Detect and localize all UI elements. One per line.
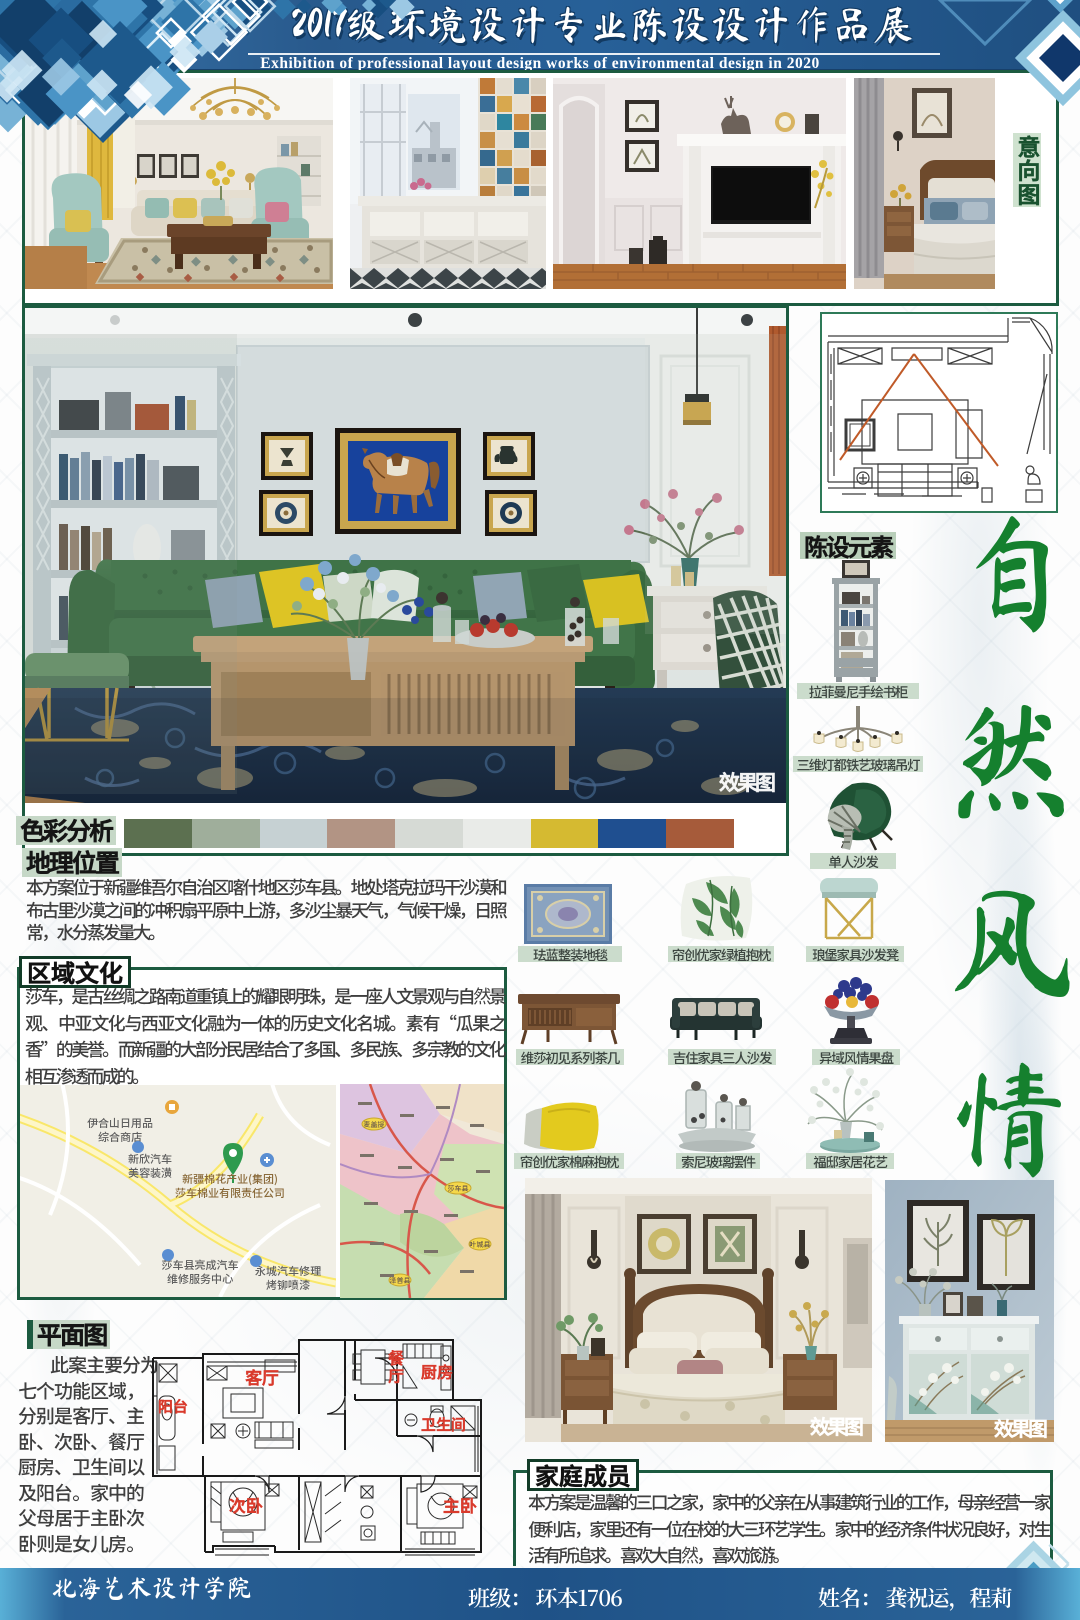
- svg-text:效果图: 效果图: [993, 1413, 1048, 1442]
- svg-text:阳台: 阳台: [158, 1396, 188, 1417]
- svg-text:厅: 厅: [388, 1363, 404, 1387]
- svg-text:莎车棉业有限责任公司: 莎车棉业有限责任公司: [175, 1185, 285, 1201]
- svg-text:客厅: 客厅: [245, 1364, 279, 1389]
- svg-text:麦盖提: 麦盖提: [364, 1120, 385, 1130]
- svg-text:效果图: 效果图: [809, 1411, 864, 1440]
- svg-text:烤铆喷漆: 烤铆喷漆: [266, 1277, 310, 1293]
- svg-text:厨房: 厨房: [420, 1359, 453, 1383]
- svg-text:美容装潢: 美容装潢: [128, 1165, 172, 1181]
- svg-text:主卧: 主卧: [443, 1492, 477, 1517]
- svg-text:效果图: 效果图: [718, 767, 776, 797]
- svg-text:莎车县: 莎车县: [448, 1184, 469, 1194]
- svg-text:叶城县: 叶城县: [470, 1240, 491, 1250]
- svg-text:卫生间: 卫生间: [421, 1414, 466, 1435]
- svg-text:次卧: 次卧: [228, 1492, 263, 1517]
- svg-text:泽普县: 泽普县: [390, 1276, 411, 1286]
- svg-text:维修服务中心: 维修服务中心: [167, 1271, 233, 1287]
